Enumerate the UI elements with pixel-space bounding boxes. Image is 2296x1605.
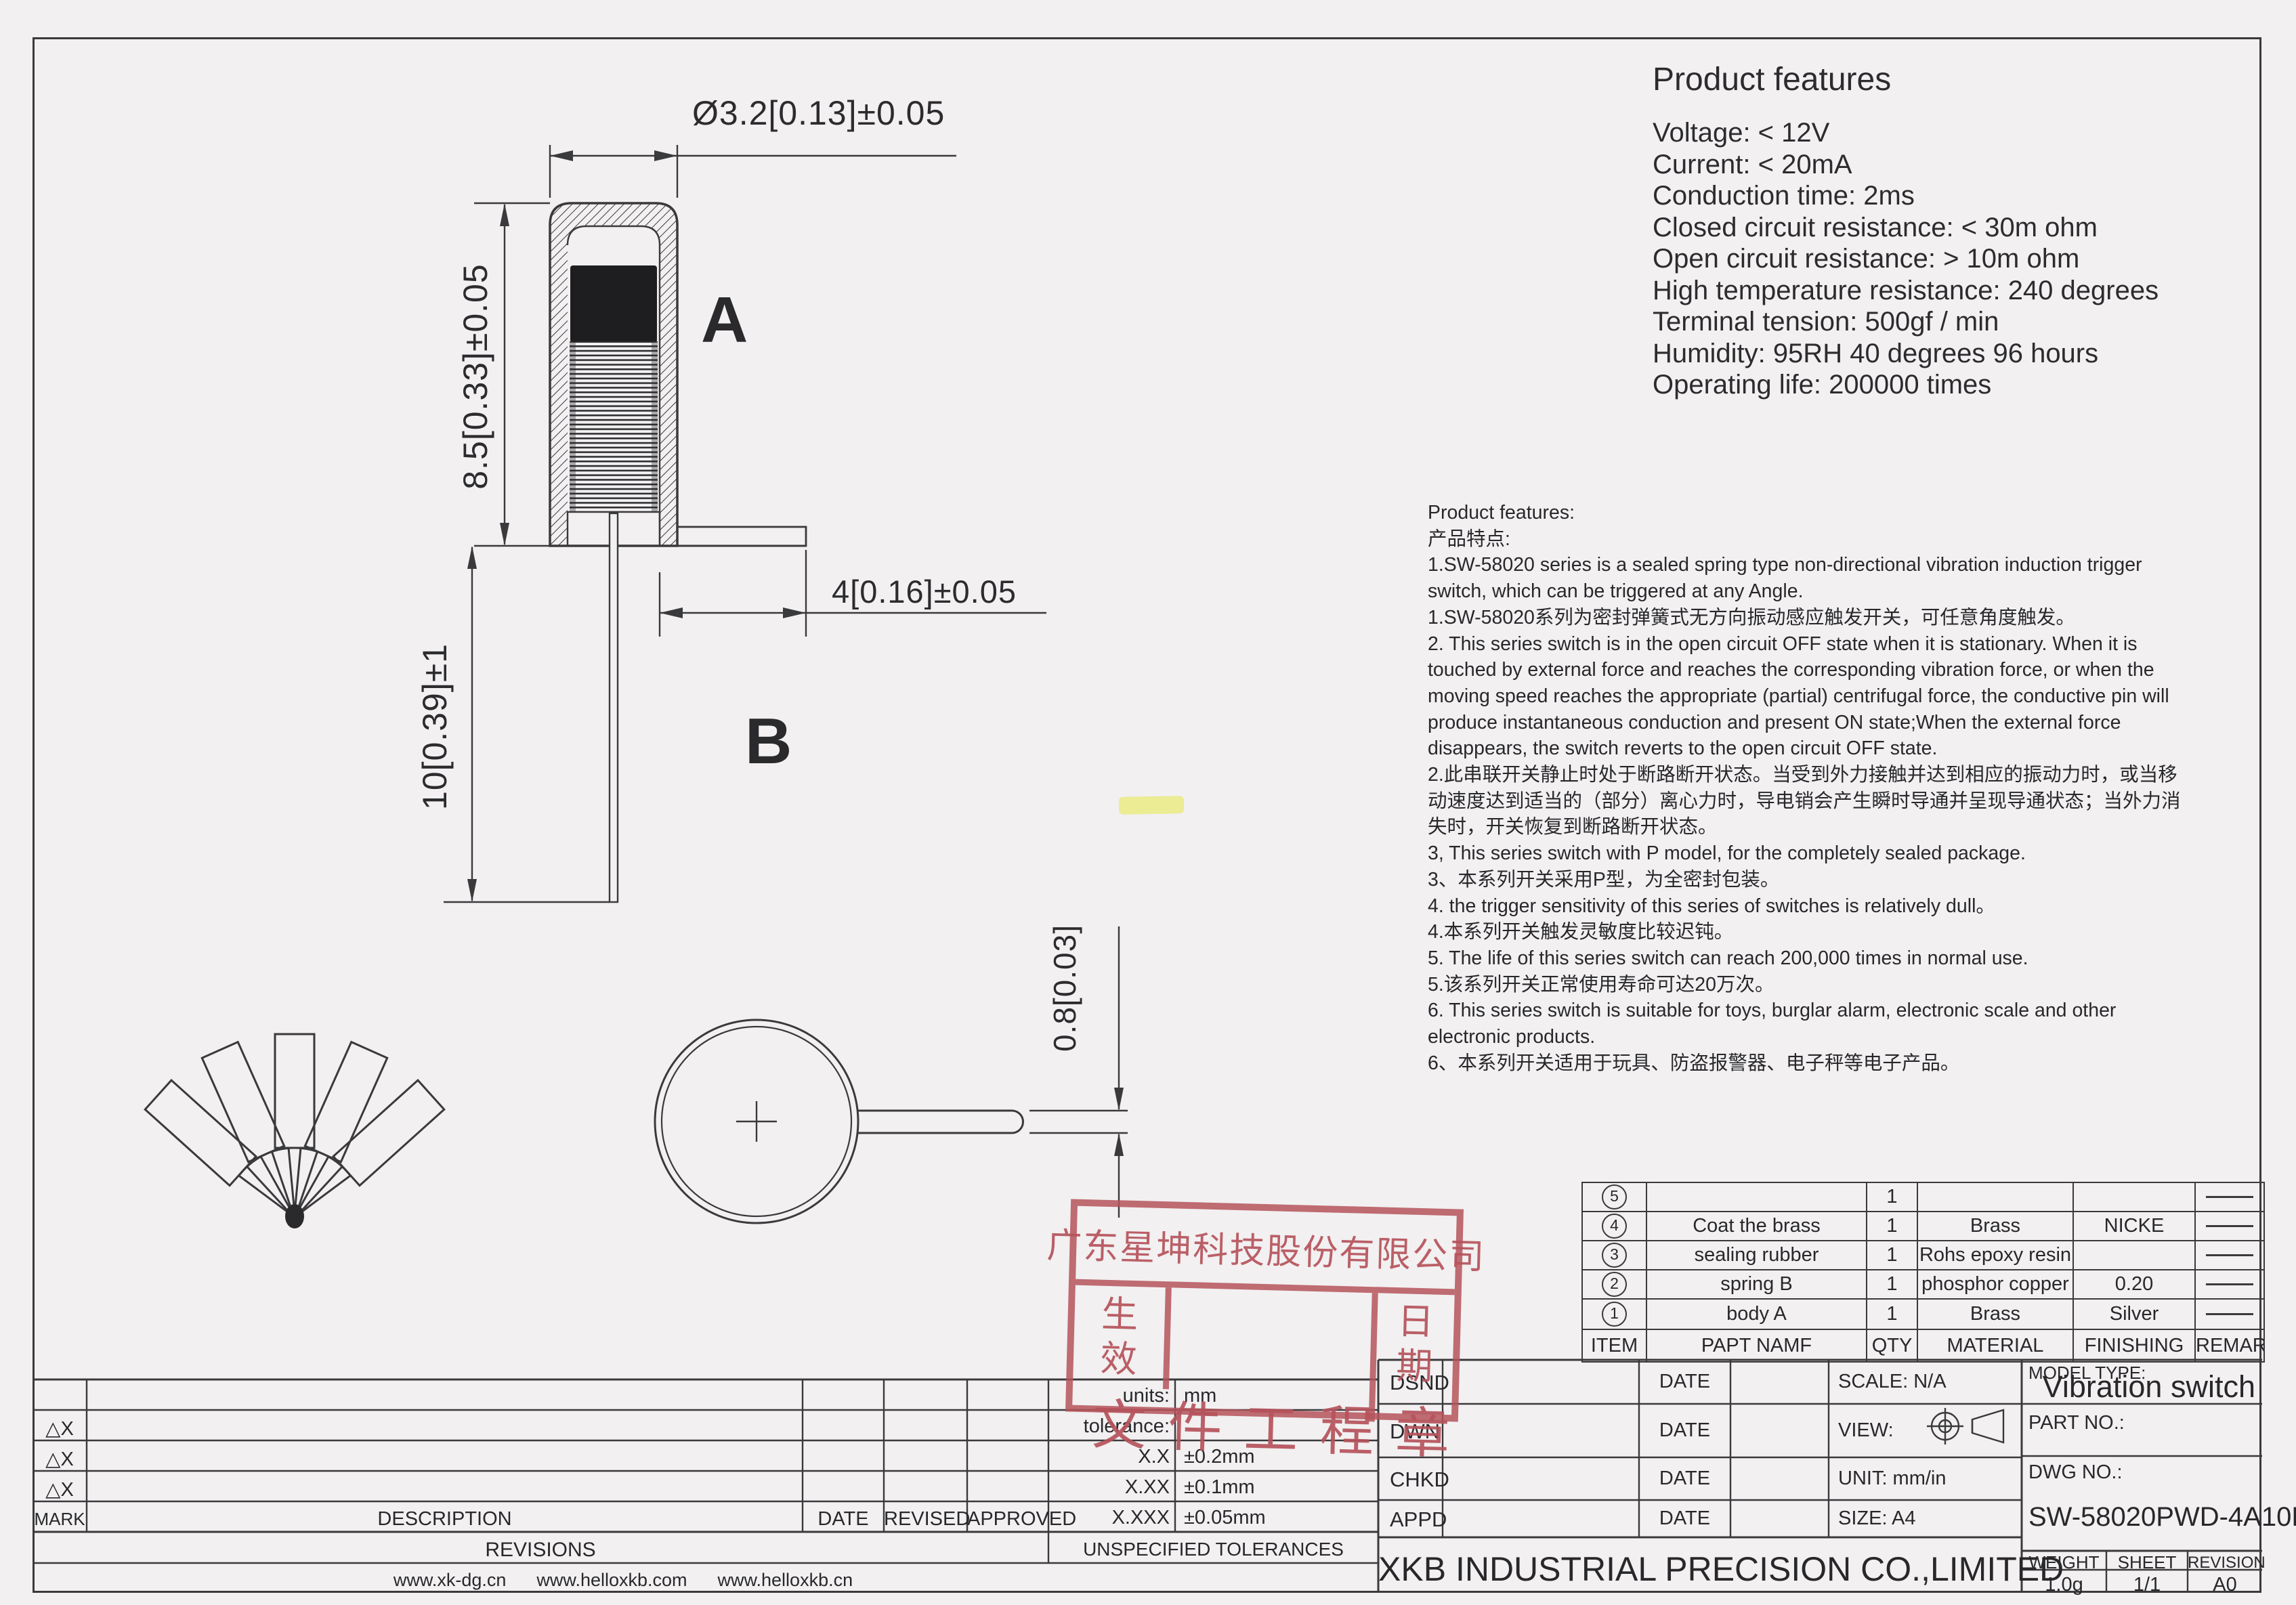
part-material: Rohs epoxy resin (1917, 1241, 2073, 1270)
item-number: 5 (1602, 1184, 1627, 1210)
col-header-finishing: FINISHING (2073, 1329, 2195, 1362)
feature-line: Conduction time: 2ms (1653, 180, 2159, 212)
feature-line: Humidity: 95RH 40 degrees 96 hours (1653, 338, 2159, 370)
description-line: 4. the trigger sensitivity of this serie… (1428, 893, 2264, 920)
part-name: body A (1646, 1299, 1867, 1329)
company-name: XKB INDUSTRIAL PRECISION CO.,LIMITED (1378, 1549, 2022, 1589)
feature-line: Open circuit resistance: > 10m ohm (1653, 243, 2159, 275)
dim-pin-width-label: 0.8[0.03] (1046, 839, 1083, 1137)
part-material: Brass (1917, 1212, 2073, 1241)
stamp-char: 效 (1100, 1337, 1138, 1382)
stamp-bottom-text: 文件工程章 (1091, 1381, 1472, 1470)
features-title: Product features (1653, 61, 2159, 98)
stamp-char: 生 (1101, 1292, 1139, 1337)
unit-field: UNIT: mm/in (1838, 1468, 1947, 1490)
part-qty: 1 (1867, 1212, 1917, 1241)
part-qty: 1 (1867, 1270, 1917, 1299)
description-line: 5.该系列开关正常使用寿命可达20万次。 (1428, 972, 2264, 998)
part-finishing: Silver (2073, 1299, 2195, 1329)
description-line: moving speed reaches the appropriate (pa… (1428, 683, 2264, 710)
item-number: 4 (1602, 1214, 1627, 1239)
company-stamp: 广东星坤科技股份有限公司 生 效 日 期 文件工程章 (1065, 1199, 1464, 1421)
part-finishing (2073, 1241, 2195, 1270)
revision-mark: △X (33, 1417, 87, 1440)
revision-mark: △X (33, 1447, 87, 1471)
weight-value: 1.0g (2022, 1574, 2106, 1596)
view-field: VIEW: (1838, 1419, 1894, 1442)
stamp-effective-cell: 生 效 (1073, 1285, 1172, 1390)
table-row: 4 Coat the brass 1 Brass NICKE (1582, 1212, 2264, 1241)
appd-label: APPD (1390, 1507, 1447, 1532)
part-material: Brass (1917, 1299, 2073, 1329)
scale-field: SCALE: N/A (1838, 1371, 1947, 1393)
tolerance-value: ±0.1mm (1184, 1476, 1255, 1499)
description-line: 失时，开关恢复到断路断开状态。 (1428, 814, 2264, 840)
description-line: 动速度达到适当的（部分）离心力时，导电销会产生瞬时导通并呈现导通状态；当外力消 (1428, 788, 2264, 815)
part-remark (2195, 1212, 2264, 1241)
description-line: 2.此串联开关静止时处于断路断开状态。当受到外力接触并达到相应的振动力时，或当移 (1428, 762, 2264, 788)
dwg-no-value: SW-58020PWD-4A10B3 (2028, 1502, 2262, 1533)
col-header-material: MATERIAL (1917, 1329, 2073, 1362)
item-number: 2 (1602, 1272, 1627, 1297)
item-number: 1 (1602, 1302, 1627, 1327)
stamp-company-name: 广东星坤科技股份有限公司 (1076, 1206, 1457, 1296)
feature-line: Terminal tension: 500gf / min (1653, 306, 2159, 338)
tolerance-precision: X.XXX (982, 1507, 1170, 1529)
description-line: 1.SW-58020系列为密封弹簧式无方向振动感应触发开关，可任意角度触发。 (1428, 605, 2264, 631)
table-row: 1 body A 1 Brass Silver (1582, 1299, 2264, 1329)
description-block: Product features: 产品特点: 1.SW-58020 serie… (1428, 500, 2264, 1076)
description-line: 3、本系列开关采用P型，为全密封包装。 (1428, 867, 2264, 893)
part-qty: 1 (1867, 1241, 1917, 1270)
part-finishing (2073, 1182, 2195, 1212)
part-no-label: PART NO.: (2028, 1412, 2125, 1434)
date-label: DATE (1639, 1419, 1730, 1442)
section-label-a: A (701, 283, 748, 358)
table-row: 5 1 (1582, 1182, 2264, 1212)
description-line: Product features: (1428, 500, 2264, 526)
tolerance-value: ±0.05mm (1184, 1507, 1266, 1529)
highlight-artifact (1119, 796, 1184, 815)
revisions-title: REVISIONS (66, 1539, 1015, 1562)
item-number: 3 (1602, 1243, 1627, 1268)
part-remark (2195, 1299, 2264, 1329)
feature-line: Operating life: 200000 times (1653, 369, 2159, 401)
description-line: touched by external force and reaches th… (1428, 657, 2264, 683)
col-header-remark: REMARK (2195, 1329, 2264, 1362)
description-line: 5. The life of this series switch can re… (1428, 945, 2264, 972)
unspecified-tolerances-label: UNSPECIFIED TOLERANCES (1048, 1539, 1378, 1560)
part-finishing: 0.20 (2073, 1270, 2195, 1299)
description-line: produce instantaneous conduction and pre… (1428, 710, 2264, 736)
feature-line: High temperature resistance: 240 degrees (1653, 275, 2159, 307)
tolerance-precision: X.XX (982, 1476, 1170, 1499)
part-remark (2195, 1182, 2264, 1212)
revision-header: REVISION (2188, 1554, 2262, 1572)
part-remark (2195, 1270, 2264, 1299)
stamp-char: 期 (1396, 1344, 1434, 1389)
stamp-char: 日 (1397, 1299, 1434, 1344)
description-line: 产品特点: (1428, 526, 2264, 553)
sheet-value: 1/1 (2106, 1574, 2188, 1596)
parts-table: 5 1 4 Coat the brass 1 Brass NICKE 3 sea… (1581, 1182, 2265, 1363)
chkd-label: CHKD (1390, 1468, 1449, 1492)
sheet-header: SHEET (2106, 1552, 2188, 1573)
part-remark (2195, 1241, 2264, 1270)
dim-flange-label: 4[0.16]±0.05 (832, 573, 1017, 610)
feature-line: Current: < 20mA (1653, 149, 2159, 181)
col-header-date: DATE (803, 1508, 884, 1531)
part-material: phosphor copper (1917, 1270, 2073, 1299)
part-qty: 1 (1867, 1299, 1917, 1329)
dim-diameter-label: Ø3.2[0.13]±0.05 (692, 93, 945, 133)
weight-header: WEIGHT (2022, 1552, 2106, 1573)
description-line: electronic products. (1428, 1024, 2264, 1050)
stamp-grid: 生 效 日 期 (1073, 1285, 1455, 1397)
date-label: DATE (1639, 1507, 1730, 1530)
dwg-no-label: DWG NO.: (2028, 1461, 2123, 1484)
part-name: spring B (1646, 1270, 1867, 1299)
col-header-mark: MARK (33, 1509, 87, 1530)
table-row: 2 spring B 1 phosphor copper 0.20 (1582, 1270, 2264, 1299)
part-name: sealing rubber (1646, 1241, 1867, 1270)
part-finishing: NICKE (2073, 1212, 2195, 1241)
part-material (1917, 1182, 2073, 1212)
description-line: 1.SW-58020 series is a sealed spring typ… (1428, 552, 2264, 578)
description-line: 6、本系列开关适用于玩具、防盗报警器、电子秤等电子产品。 (1428, 1050, 2264, 1077)
features-panel: Product features Voltage: < 12V Current:… (1653, 61, 2159, 401)
description-line: 2. This series switch is in the open cir… (1428, 631, 2264, 658)
feature-line: Closed circuit resistance: < 30m ohm (1653, 212, 2159, 244)
section-label-b: B (745, 704, 792, 779)
size-field: SIZE: A4 (1838, 1507, 1915, 1530)
drawing-sheet: Ø3.2[0.13]±0.05 8.5[0.33]±0.05 10[0.39]±… (0, 0, 2296, 1605)
company-websites: www.xk-dg.cn www.helloxkb.com www.hellox… (284, 1570, 962, 1591)
col-header-revised: REVISED (884, 1508, 967, 1531)
description-line: 3, This series switch with P model, for … (1428, 840, 2264, 867)
part-name (1646, 1182, 1867, 1212)
dim-height-label: 8.5[0.33]±0.05 (456, 204, 495, 549)
table-row: 3 sealing rubber 1 Rohs epoxy resin (1582, 1241, 2264, 1270)
revision-mark: △X (33, 1478, 87, 1501)
dim-pin-length-label: 10[0.39]±1 (415, 554, 454, 899)
date-label: DATE (1639, 1468, 1730, 1490)
description-line: 6. This series switch is suitable for to… (1428, 998, 2264, 1024)
feature-line: Voltage: < 12V (1653, 117, 2159, 149)
description-line: switch, which can be triggered at any An… (1428, 578, 2264, 605)
description-line: disappears, the switch reverts to the op… (1428, 735, 2264, 762)
description-line: 4.本系列开关触发灵敏度比较迟钝。 (1428, 919, 2264, 945)
part-qty: 1 (1867, 1182, 1917, 1212)
col-header-qty: QTY (1867, 1329, 1917, 1362)
revision-value: A0 (2188, 1574, 2262, 1596)
date-label: DATE (1639, 1371, 1730, 1393)
col-header-item: ITEM (1582, 1329, 1646, 1362)
col-header-description: DESCRIPTION (87, 1508, 803, 1531)
col-header-name: PAPT NAMF (1646, 1329, 1867, 1362)
part-name: Coat the brass (1646, 1212, 1867, 1241)
model-type-value: Vibration switch (2028, 1369, 2255, 1405)
table-header-row: ITEM PAPT NAMF QTY MATERIAL FINISHING RE… (1582, 1329, 2264, 1362)
